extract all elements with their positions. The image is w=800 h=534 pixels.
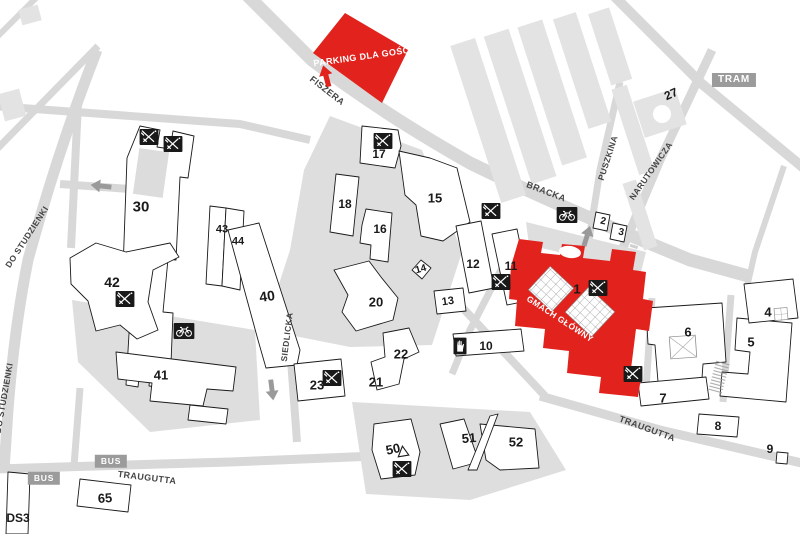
building-label-41: 41 [154,369,168,382]
building-label-44: 44 [232,237,244,248]
hand-icon [454,338,467,355]
building-label-40: 40 [258,288,275,304]
building-label-12: 12 [466,258,479,270]
bike-parking-icon [174,323,195,339]
building-label-50: 50 [385,441,402,457]
building-label-13: 13 [441,296,455,309]
building-27-courtyard [653,105,671,123]
tram-stop-tag: TRAM [712,73,756,87]
road-traugutta-east [540,396,800,464]
building-label-42: 42 [104,275,120,289]
building-label-11: 11 [505,260,518,272]
building-label-65: 65 [97,491,112,505]
bus-stop-tag-2: BUS [28,472,60,485]
food-icon [482,203,501,219]
road-east-edge [747,166,784,287]
building-label-22: 22 [394,348,408,361]
bus-stop-tag: BUS [95,455,127,468]
building-label-21: 21 [369,376,383,389]
building-label-1: 1 [573,283,580,296]
building-label-51: 51 [461,431,477,445]
building-label-23: 23 [310,379,324,392]
campus-map: 30 43 44 42 40 41 65 17 18 16 15 14 20 1… [0,0,800,534]
building-label-8: 8 [715,420,722,432]
building-label-52: 52 [509,436,523,449]
food-icon [624,366,643,382]
arrow-south [264,379,279,401]
building-label-17: 17 [372,148,385,160]
food-icon [164,136,183,152]
building-6-hatch-box [669,335,696,359]
food-icon [323,370,342,386]
building-label-30: 30 [133,200,150,215]
building-4-hatch-box [774,307,788,320]
bike-parking-icon [557,207,578,223]
road-to-traugutta [74,388,80,466]
building-label-7: 7 [659,392,666,405]
building-label-9: 9 [767,443,774,455]
building-label-15: 15 [428,192,442,205]
building-30-courtyard [133,148,169,198]
food-icon [393,461,412,477]
building-label-4: 4 [764,306,771,319]
building-9-shape [776,452,788,464]
building-label-20: 20 [369,296,383,309]
building-label-10: 10 [479,340,492,352]
building-label-16: 16 [373,223,386,235]
food-icon [140,129,159,145]
food-icon [492,274,511,290]
food-icon [589,280,608,296]
building-label-5: 5 [747,336,754,349]
food-icon [116,291,135,307]
building-label-18: 18 [338,198,351,210]
dorm-label-ds3: DS3 [6,512,29,524]
building-label-6: 6 [684,326,691,339]
building-label-43: 43 [216,225,228,236]
